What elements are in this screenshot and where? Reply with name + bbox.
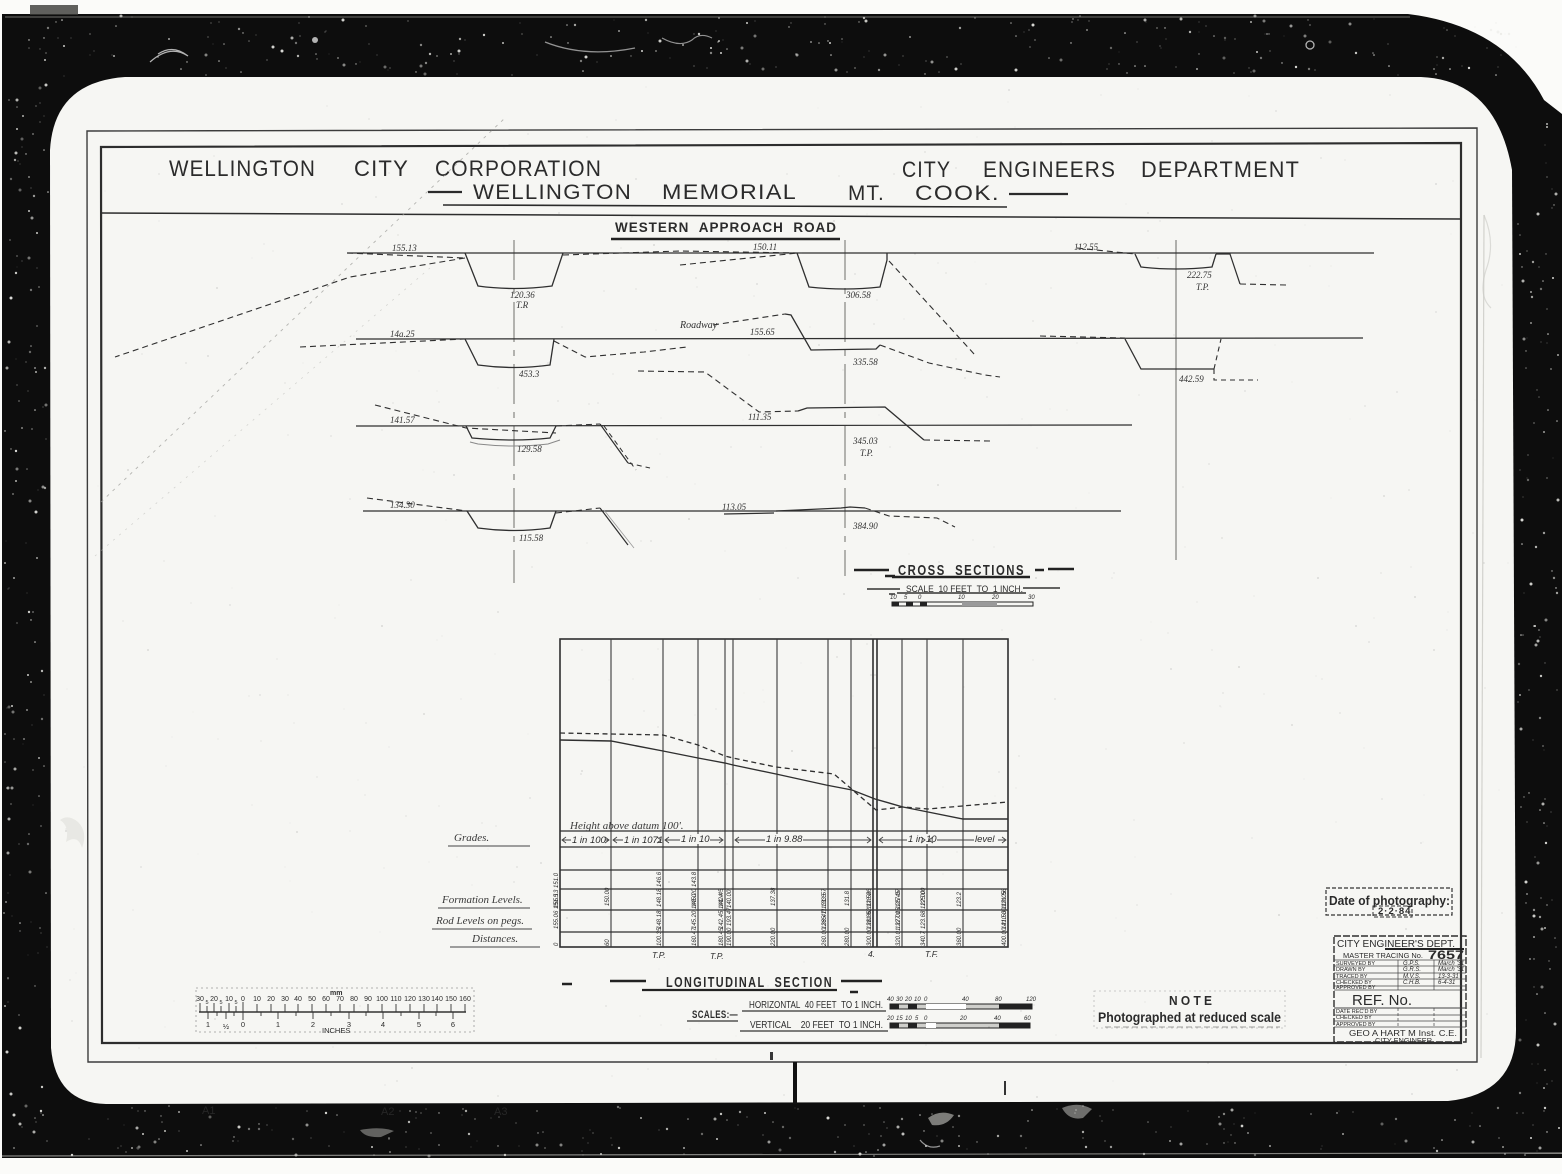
svg-text:CITY: CITY: [354, 156, 409, 181]
svg-text:260.00 265.11: 260.00 265.11: [822, 908, 828, 947]
svg-text:140: 140: [431, 996, 443, 1003]
svg-text:WELLINGTON: WELLINGTON: [169, 156, 316, 181]
svg-text:1 in 9.88: 1 in 9.88: [766, 834, 803, 845]
svg-text:280.00: 280.00: [845, 927, 851, 947]
svg-text:INCHES: INCHES: [322, 1026, 350, 1035]
svg-text:145.20 143.0: 145.20 143.0: [692, 893, 698, 929]
svg-text:20: 20: [904, 997, 912, 1003]
svg-text:Formation Levels.: Formation Levels.: [441, 894, 523, 906]
svg-text:140.00: 140.00: [727, 889, 733, 908]
svg-text:Distances.: Distances.: [471, 933, 518, 945]
svg-text:MEMORIAL: MEMORIAL: [662, 181, 797, 204]
svg-text:1: 1: [206, 1020, 210, 1029]
svg-text:222.75: 222.75: [1187, 270, 1212, 280]
svg-text:80: 80: [995, 997, 1002, 1003]
svg-text:DEPARTMENT: DEPARTMENT: [1141, 157, 1300, 182]
svg-text:SCALES:—: SCALES:—: [692, 1009, 738, 1021]
svg-text:0: 0: [241, 1020, 245, 1029]
svg-text:MASTER TRACING No.: MASTER TRACING No.: [1343, 953, 1423, 960]
svg-text:GEO A HART M Inst. C.E.: GEO A HART M Inst. C.E.: [1349, 1029, 1457, 1038]
svg-text:20: 20: [210, 996, 218, 1003]
svg-text:150: 150: [445, 996, 457, 1003]
svg-text:300.00 311.52: 300.00 311.52: [867, 907, 873, 946]
svg-text:150.11: 150.11: [753, 242, 777, 252]
svg-text:10: 10: [905, 1016, 912, 1022]
svg-text:C.H.B.: C.H.B.: [1403, 980, 1421, 986]
svg-text:G.R.S.: G.R.S.: [1403, 967, 1421, 973]
svg-text:120.36: 120.36: [510, 290, 535, 300]
svg-text:Photographed at reduced scale: Photographed at reduced scale: [1098, 1010, 1281, 1025]
svg-text:5: 5: [205, 1000, 208, 1006]
svg-text:360.00: 360.00: [957, 927, 963, 946]
svg-text:1 in 100: 1 in 100: [572, 835, 607, 846]
svg-text:131.8: 131.8: [845, 890, 851, 906]
svg-text:400.00 410.00: 400.00 410.00: [1002, 907, 1008, 946]
svg-text:453.3: 453.3: [519, 369, 540, 379]
svg-text:148.18: 148.18: [657, 910, 663, 929]
svg-text:APPROVED BY: APPROVED BY: [1336, 1022, 1376, 1028]
svg-text:220.00: 220.00: [771, 927, 777, 947]
svg-text:ENGINEERS: ENGINEERS: [983, 157, 1116, 182]
svg-text:APPROVED BY: APPROVED BY: [1336, 985, 1376, 991]
svg-text:40: 40: [887, 997, 894, 1003]
svg-text:A3: A3: [494, 1106, 507, 1118]
svg-text:5: 5: [417, 1020, 421, 1029]
svg-text:60: 60: [322, 996, 330, 1003]
svg-text:20: 20: [991, 595, 999, 601]
svg-text:T.P.: T.P.: [860, 448, 873, 458]
svg-text:134.30: 134.30: [390, 500, 415, 510]
svg-text:MT.: MT.: [848, 182, 885, 205]
svg-text:335.58: 335.58: [852, 357, 878, 367]
svg-text:Rod Levels on pegs.: Rod Levels on pegs.: [435, 915, 524, 927]
svg-text:T.F.: T.F.: [925, 949, 938, 959]
svg-text:Grades.: Grades.: [454, 832, 489, 844]
svg-text:40: 40: [962, 997, 969, 1003]
svg-text:2: 2: [311, 1020, 315, 1029]
svg-text:LONGITUDINAL SECTION: LONGITUDINAL SECTION: [666, 974, 833, 991]
svg-text:VERTICAL 20 FEET TO 1 INCH: VERTICAL 20 FEET TO 1 INCH.: [750, 1020, 883, 1031]
svg-text:T.P.: T.P.: [710, 951, 724, 961]
svg-text:30: 30: [281, 996, 289, 1003]
svg-text:HORIZONTAL 40 FEET TO 1 INCH: HORIZONTAL 40 FEET TO 1 INCH.: [749, 1000, 883, 1011]
svg-text:60: 60: [605, 939, 611, 946]
svg-text:70: 70: [336, 996, 344, 1003]
svg-text:160: 160: [459, 996, 471, 1003]
svg-text:6-4-31: 6-4-31: [1438, 980, 1455, 986]
svg-text:10: 10: [253, 996, 261, 1003]
svg-text:100: 100: [376, 996, 388, 1003]
svg-text:155.65: 155.65: [750, 327, 775, 337]
svg-text:6: 6: [451, 1020, 455, 1029]
svg-text:30: 30: [196, 996, 204, 1003]
svg-text:142.45 141.4: 142.45 141.4: [719, 893, 725, 929]
svg-text:30: 30: [896, 997, 903, 1003]
svg-text:306.58: 306.58: [845, 290, 871, 300]
svg-text:14a.25: 14a.25: [390, 329, 415, 339]
svg-text:160.47: 160.47: [692, 927, 698, 946]
svg-text:CORPORATION: CORPORATION: [435, 156, 602, 181]
svg-text:N O T E: N O T E: [1169, 993, 1212, 1008]
svg-text:20: 20: [886, 1016, 894, 1022]
svg-text:50: 50: [308, 996, 316, 1003]
svg-text:120: 120: [1026, 997, 1037, 1003]
svg-text:10: 10: [890, 595, 897, 601]
svg-text:123.68 122.00: 123.68 122.00: [921, 890, 927, 929]
svg-text:155.06 151.5: 155.06 151.5: [554, 893, 560, 929]
svg-text:100.35: 100.35: [657, 927, 663, 946]
svg-text:340.7: 340.7: [921, 930, 927, 946]
svg-text:120: 120: [404, 996, 416, 1003]
svg-text:320.01 327.05: 320.01 327.05: [896, 907, 902, 946]
svg-text:5: 5: [234, 1000, 237, 1006]
svg-text:123.2: 123.2: [957, 891, 963, 907]
svg-text:Height above datum 100'.: Height above datum 100'.: [569, 820, 684, 832]
svg-text:4: 4: [381, 1020, 385, 1029]
svg-text:155.13: 155.13: [392, 243, 417, 253]
svg-text:2·2·84: 2·2·84: [1378, 906, 1411, 917]
svg-text:15: 15: [896, 1016, 903, 1022]
svg-text:0: 0: [241, 996, 245, 1003]
svg-text:112.55: 112.55: [1074, 242, 1099, 252]
svg-text:1 in 10: 1 in 10: [681, 834, 710, 845]
svg-text:1 in 10: 1 in 10: [908, 834, 937, 845]
svg-text:4.: 4.: [868, 949, 875, 959]
svg-text:384.90: 384.90: [852, 521, 878, 531]
svg-text:Roadway: Roadway: [679, 320, 718, 331]
svg-text:DRAWN BY: DRAWN BY: [1336, 967, 1366, 973]
svg-text:10: 10: [958, 595, 965, 601]
svg-text:REF. No.: REF. No.: [1352, 992, 1412, 1009]
svg-text:40: 40: [294, 996, 302, 1003]
svg-text:80: 80: [350, 996, 358, 1003]
svg-text:129.58: 129.58: [517, 444, 542, 454]
svg-text:CITY ENGINEER: CITY ENGINEER: [1375, 1038, 1432, 1045]
svg-text:T.R: T.R: [516, 300, 529, 310]
svg-text:130: 130: [418, 996, 430, 1003]
svg-text:COOK.: COOK.: [915, 182, 1000, 205]
svg-text:1: 1: [276, 1020, 280, 1029]
svg-text:345.03: 345.03: [852, 436, 878, 446]
svg-text:141.57: 141.57: [390, 415, 415, 425]
svg-text:WESTERN APPROACH ROAD: WESTERN APPROACH ROAD: [615, 220, 837, 235]
svg-text:90: 90: [364, 996, 372, 1003]
svg-text:10: 10: [225, 996, 233, 1003]
svg-text:20: 20: [267, 996, 275, 1003]
svg-text:150.00: 150.00: [605, 887, 611, 906]
svg-text:115.58: 115.58: [519, 533, 544, 543]
svg-text:level: level: [975, 834, 995, 845]
svg-text:10: 10: [914, 997, 921, 1003]
svg-text:148.18 146.6: 148.18 146.6: [657, 871, 663, 907]
svg-text:442.59: 442.59: [1179, 374, 1204, 384]
svg-text:5: 5: [219, 1000, 222, 1006]
svg-text:A2: A2: [381, 1106, 394, 1118]
svg-text:T.P.: T.P.: [1196, 282, 1209, 292]
svg-text:A1: A1: [202, 1105, 215, 1117]
svg-text:113.05: 113.05: [722, 502, 747, 512]
svg-text:½: ½: [223, 1022, 230, 1031]
svg-text:March '31: March '31: [1438, 967, 1464, 973]
svg-text:110: 110: [390, 996, 401, 1003]
svg-text:CITY: CITY: [902, 157, 951, 182]
svg-text:40: 40: [994, 1016, 1001, 1022]
svg-text:1 in 1071: 1 in 1071: [624, 835, 663, 846]
svg-text:T.P.: T.P.: [652, 950, 666, 960]
svg-text:137.38: 137.38: [771, 887, 777, 906]
svg-text:190.00 193.47: 190.00 193.47: [727, 907, 733, 946]
svg-text:180.45: 180.45: [719, 927, 725, 946]
svg-text:CHECKED BY: CHECKED BY: [1336, 1015, 1372, 1021]
svg-text:20: 20: [959, 1016, 967, 1022]
svg-text:60: 60: [1024, 1016, 1031, 1022]
svg-text:WELLINGTON: WELLINGTON: [473, 181, 632, 204]
svg-text:111.35: 111.35: [748, 412, 772, 422]
